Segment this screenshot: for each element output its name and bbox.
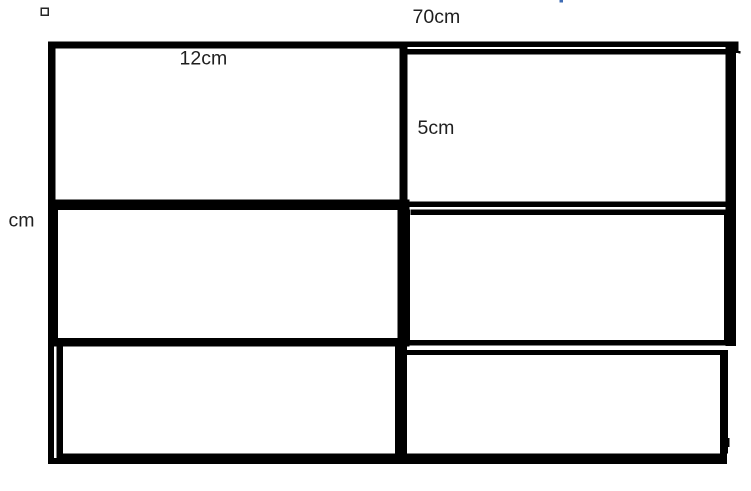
svg-text:12cm: 12cm xyxy=(180,48,228,70)
svg-text:cm: cm xyxy=(9,209,35,231)
svg-text:70cm: 70cm xyxy=(413,6,461,28)
svg-text:5cm: 5cm xyxy=(418,117,455,139)
